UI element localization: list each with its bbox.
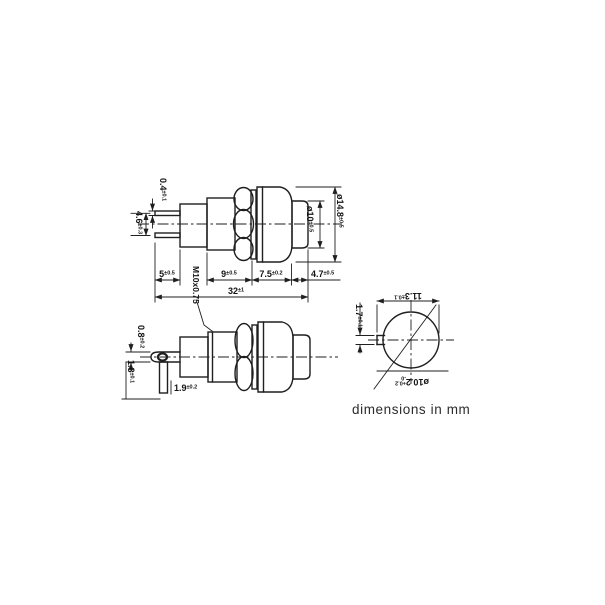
dim-keyway-width: 1.7±0.1	[354, 303, 374, 353]
dim-label: ø10.2+0.2-0	[395, 375, 429, 388]
dim-label: 4.7±0.5	[311, 269, 334, 279]
dim-label: 7.5±0.2	[259, 269, 282, 279]
callout-thread-spec: M10x0.75	[191, 266, 212, 331]
dim-lug-hole: 1.8±0.1	[122, 360, 160, 399]
dim-label: ø10±0.5	[305, 206, 315, 232]
units-note: dimensions in mm	[352, 402, 470, 417]
dim-terminal-thickness: 0.4±0.1	[149, 178, 169, 228]
pushbutton-dimension-drawing: 5±0.5 9±0.5 7.5±0.2 4.7±0.5 32±1 M10x0.7…	[0, 0, 605, 605]
front-side-view: 5±0.5 9±0.5 7.5±0.2 4.7±0.5 32±1 M10x0.7…	[131, 178, 345, 331]
dim-label: 1.7±0.1	[354, 304, 364, 327]
dim-label: ø14.8±0.5	[335, 194, 345, 228]
dim-thread-length: 9±0.5	[207, 269, 252, 280]
dim-bezel-diameter: ø14.8±0.5	[296, 187, 345, 262]
panel-cutout-view: 11.3±0.1 1.7±0.1 ø10.2+0.2-0	[354, 291, 454, 389]
rotated-side-view: 0.8±0.2 1.8±0.1 1.9±0.2	[122, 322, 338, 399]
dim-lug-width: 1.9±0.2	[171, 381, 197, 394]
terminal-pin-bottom	[155, 233, 180, 238]
hex-nut-lobe	[234, 188, 253, 211]
hex-nut-lobe	[234, 238, 253, 261]
dim-label: 5±0.5	[159, 269, 175, 279]
technical-drawing-page: 5±0.5 9±0.5 7.5±0.2 4.7±0.5 32±1 M10x0.7…	[0, 0, 605, 605]
leader-line	[197, 302, 212, 331]
dim-bezel-length: 7.5±0.2	[252, 269, 292, 280]
terminal-block	[180, 204, 207, 247]
dim-overall-length: 32±1	[155, 286, 308, 297]
dim-button-length: 4.7±0.5	[292, 269, 341, 280]
dim-label: 0.8±0.2	[136, 325, 146, 348]
dim-label: 9±0.5	[221, 269, 237, 279]
dim-label: 32±1	[228, 286, 244, 296]
dim-label: 1.8±0.1	[126, 360, 136, 383]
solder-lug-edge	[160, 362, 168, 393]
dim-terminal-length: 5±0.5	[155, 269, 180, 280]
thread-spec-label: M10x0.75	[191, 266, 201, 304]
dim-label: 11.3±0.1	[394, 291, 422, 301]
dim-terminal-spacing: 4.6±0.3	[131, 211, 150, 236]
dim-label: 0.4±0.1	[158, 178, 168, 201]
dim-label: 4.6±0.3	[134, 211, 144, 234]
dim-label: 1.9±0.2	[174, 383, 197, 393]
terminal-pin-top	[155, 211, 180, 216]
